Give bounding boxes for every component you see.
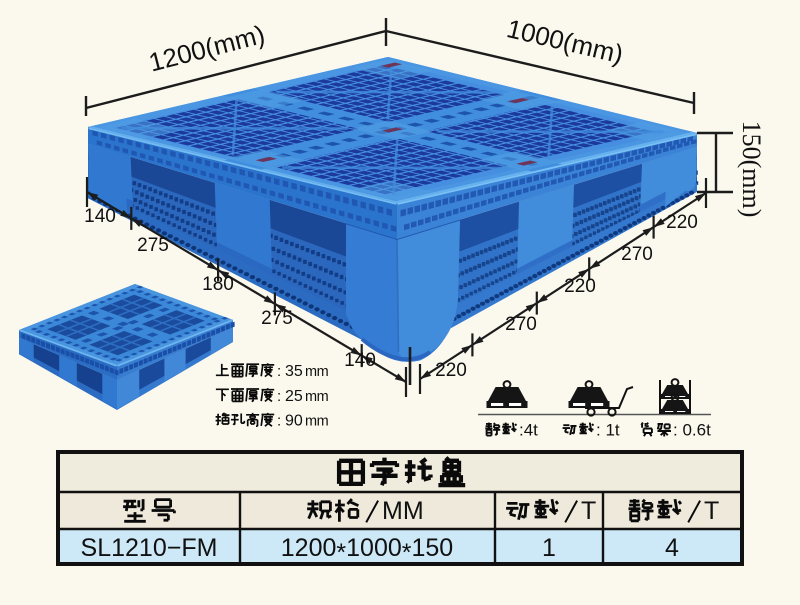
svg-text:25: 25 xyxy=(285,388,303,405)
svg-text:SL1210−FM: SL1210−FM xyxy=(81,534,218,562)
svg-text:275: 275 xyxy=(261,308,293,329)
svg-text:220: 220 xyxy=(564,276,596,297)
svg-text:mm: mm xyxy=(305,414,329,430)
svg-text:270: 270 xyxy=(505,314,537,335)
svg-text:: 0.6t: : 0.6t xyxy=(673,421,711,440)
svg-text:180: 180 xyxy=(202,274,234,295)
svg-text:35: 35 xyxy=(285,363,303,380)
svg-text::: : xyxy=(277,388,281,405)
svg-text:140: 140 xyxy=(84,206,116,227)
svg-text:mm: mm xyxy=(305,364,329,380)
svg-text::4t: :4t xyxy=(519,421,538,440)
svg-text:270: 270 xyxy=(621,244,653,265)
svg-text:90: 90 xyxy=(285,413,303,430)
svg-text:1: 1 xyxy=(542,534,556,562)
svg-text:T: T xyxy=(581,497,596,525)
svg-text:220: 220 xyxy=(435,360,467,381)
svg-text:T: T xyxy=(704,497,719,525)
svg-text:4: 4 xyxy=(665,534,679,562)
svg-text:140: 140 xyxy=(344,350,376,371)
svg-text:: 1t: : 1t xyxy=(596,421,620,440)
svg-text:mm: mm xyxy=(305,389,329,405)
svg-text:220: 220 xyxy=(666,212,698,233)
svg-text:275: 275 xyxy=(137,235,169,256)
svg-text::: : xyxy=(277,413,281,430)
svg-text:MM: MM xyxy=(382,497,424,525)
svg-text:150(mm): 150(mm) xyxy=(737,121,766,218)
svg-text::: : xyxy=(277,363,281,380)
